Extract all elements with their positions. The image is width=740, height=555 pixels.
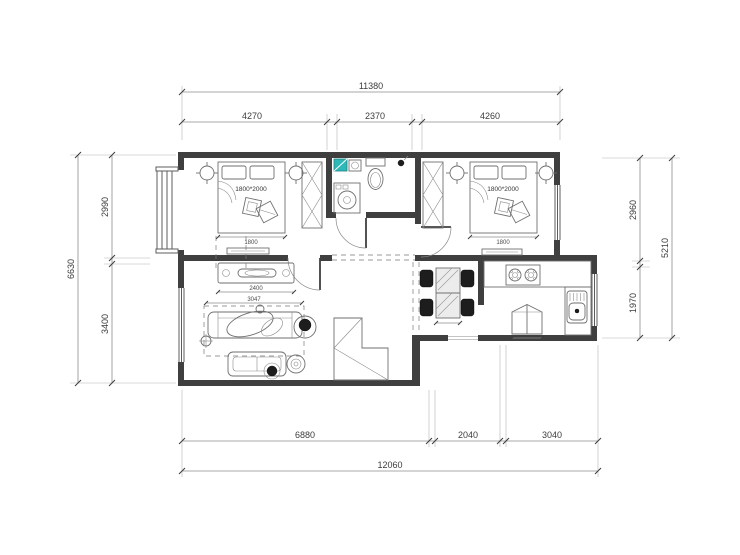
chaise-icon <box>224 306 276 342</box>
floor-lamp-icon <box>199 334 213 348</box>
dim-label-right-total: 5210 <box>660 238 670 258</box>
door-bedroom-right <box>421 227 451 257</box>
armchair-side-table-icon <box>294 316 316 338</box>
tv-console-icon <box>218 263 294 283</box>
dimension-top-segments: 4270 2370 4260 <box>179 111 563 125</box>
dim-label-right-seg-top: 2960 <box>628 200 638 220</box>
dim-label-top-total: 11380 <box>359 81 383 91</box>
living-window-icon <box>179 288 184 362</box>
bed-left-size-label: 1800*2000 <box>235 186 267 193</box>
bedroom-tv-icon <box>227 248 269 254</box>
gas-stove-icon <box>506 265 540 285</box>
refrigerator-icon <box>512 305 542 335</box>
dining-chair-icon <box>420 270 433 287</box>
double-bed-icon <box>470 162 537 233</box>
floor-plan-drawing: 11380 4270 2370 4260 6880 2040 3040 1206… <box>0 0 740 555</box>
kitchen <box>484 261 591 340</box>
dim-label-left-seg-top: 2990 <box>100 197 110 217</box>
nightstand-lamp-icon <box>535 162 557 184</box>
dimension-bottom-segments: 6880 2040 3040 <box>179 430 601 444</box>
sofa-icon <box>208 306 302 342</box>
dining-chair-icon <box>461 270 474 287</box>
rug-icon <box>204 306 304 356</box>
dimension-top-total: 11380 <box>179 81 563 95</box>
dim-label-left-seg-bottom: 3400 <box>100 314 110 334</box>
dim-label-top-seg3: 4260 <box>480 111 500 121</box>
living-room: 2400 3047 <box>199 263 388 380</box>
bay-window-icon <box>156 167 178 253</box>
dim-label-bottom-total: 12060 <box>377 460 402 470</box>
dim-label-bottom-seg2: 2040 <box>458 430 478 440</box>
entry-threshold <box>448 337 478 340</box>
wardrobe-icon <box>302 162 322 228</box>
dimension-right-total: 5210 <box>660 155 675 341</box>
door-bathroom <box>336 218 366 248</box>
bedroom-right: 1800*2000 1800 <box>423 162 557 255</box>
dimension-left-total: 6630 <box>66 152 81 386</box>
washing-machine-icon <box>334 183 360 213</box>
dimension-left-segments: 2990 3400 <box>100 152 115 386</box>
double-bed-icon <box>218 162 285 233</box>
dim-label-bottom-seg1: 6880 <box>295 430 315 440</box>
svg-text:2400: 2400 <box>249 286 263 292</box>
floor-plan-canvas: 11380 4270 2370 4260 6880 2040 3040 1206… <box>0 0 740 555</box>
wardrobe-icon <box>423 162 443 228</box>
loveseat-icon <box>228 352 286 376</box>
dimension-right-segments: 2960 1970 <box>628 155 643 341</box>
sofa-width-dim: 3047 <box>204 297 304 305</box>
svg-text:1800: 1800 <box>244 240 258 246</box>
dim-label-right-seg-bottom: 1970 <box>628 293 638 313</box>
tv-width-dim: 2400 <box>216 286 296 294</box>
wash-basin-icon <box>334 159 361 171</box>
dimension-bottom-total: 12060 <box>179 460 601 474</box>
svg-text:3047: 3047 <box>247 297 261 303</box>
witness-lines <box>70 86 680 477</box>
bedroom-tv-icon <box>482 249 522 255</box>
dashed-guides <box>216 236 419 333</box>
bedroom-left: 1800*2000 1800 <box>196 162 322 254</box>
dining-table-icon <box>436 268 460 318</box>
toilet-icon <box>366 158 385 190</box>
nightstand-lamp-icon <box>196 162 218 184</box>
dining-area <box>420 268 474 325</box>
bedroom-right-window-icon <box>555 185 560 240</box>
bathroom <box>334 156 408 213</box>
dining-chair-icon <box>461 299 474 316</box>
nightstand-lamp-icon <box>446 162 468 184</box>
svg-text:1800: 1800 <box>496 240 510 246</box>
bed-right-size-label: 1800*2000 <box>487 186 519 193</box>
dim-label-top-seg1: 4270 <box>242 111 262 121</box>
kitchen-window-icon <box>592 274 597 326</box>
bed-left-width-dim: 1800 <box>216 235 287 246</box>
stairs-icon <box>334 318 388 380</box>
dim-label-top-seg2: 2370 <box>365 111 385 121</box>
dining-chair-icon <box>420 299 433 316</box>
swivel-chair-icon <box>287 355 305 373</box>
kitchen-sink-icon <box>567 291 587 323</box>
dim-label-left-total: 6630 <box>66 259 76 279</box>
dim-label-bottom-seg3: 3040 <box>542 430 562 440</box>
bed-right-width-dim: 1800 <box>468 235 539 246</box>
